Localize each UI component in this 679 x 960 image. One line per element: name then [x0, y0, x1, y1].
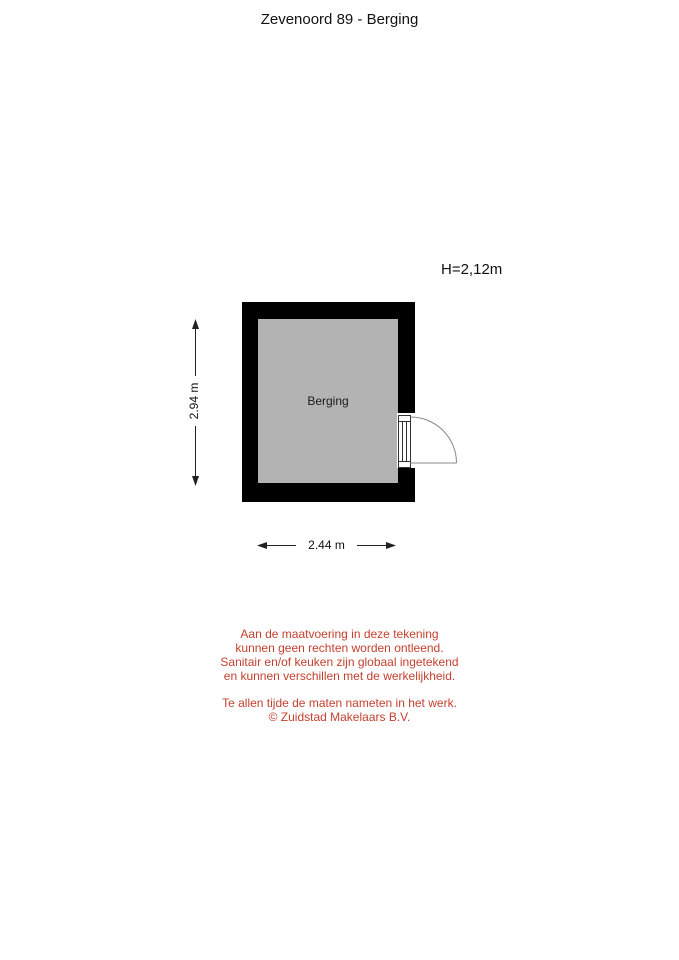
disclaimer-line: kunnen geen rechten worden ontleend. [0, 641, 679, 655]
disclaimer-line: Te allen tijde de maten nameten in het w… [0, 696, 679, 710]
room-floor: Berging [258, 319, 398, 483]
disclaimer-line: Aan de maatvoering in deze tekening [0, 627, 679, 641]
disclaimer-line: en kunnen verschillen met de werkelijkhe… [0, 669, 679, 683]
ceiling-height-label: H=2,12m [441, 261, 502, 278]
copyright-line: © Zuidstad Makelaars B.V. [0, 710, 679, 724]
disclaimer-line: Sanitair en/of keuken zijn globaal inget… [0, 655, 679, 669]
height-dimension-arrow-up [192, 319, 199, 329]
door-swing-arc [411, 417, 457, 463]
height-dimension-label: 2.94 m [186, 376, 202, 426]
disclaimer-text: Aan de maatvoering in deze tekening kunn… [0, 627, 679, 724]
disclaimer-paragraph-1: Aan de maatvoering in deze tekening kunn… [0, 627, 679, 683]
width-dimension-arrow-left [257, 542, 267, 549]
disclaimer-paragraph-2: Te allen tijde de maten nameten in het w… [0, 696, 679, 724]
room-label: Berging [307, 394, 348, 408]
floorplan-page: Zevenoord 89 - Berging H=2,12m Berging 2… [0, 0, 679, 960]
width-dimension-label: 2.44 m [296, 538, 357, 553]
width-dimension-arrow-right [386, 542, 396, 549]
height-dimension-arrow-down [192, 476, 199, 486]
page-title: Zevenoord 89 - Berging [0, 11, 679, 28]
